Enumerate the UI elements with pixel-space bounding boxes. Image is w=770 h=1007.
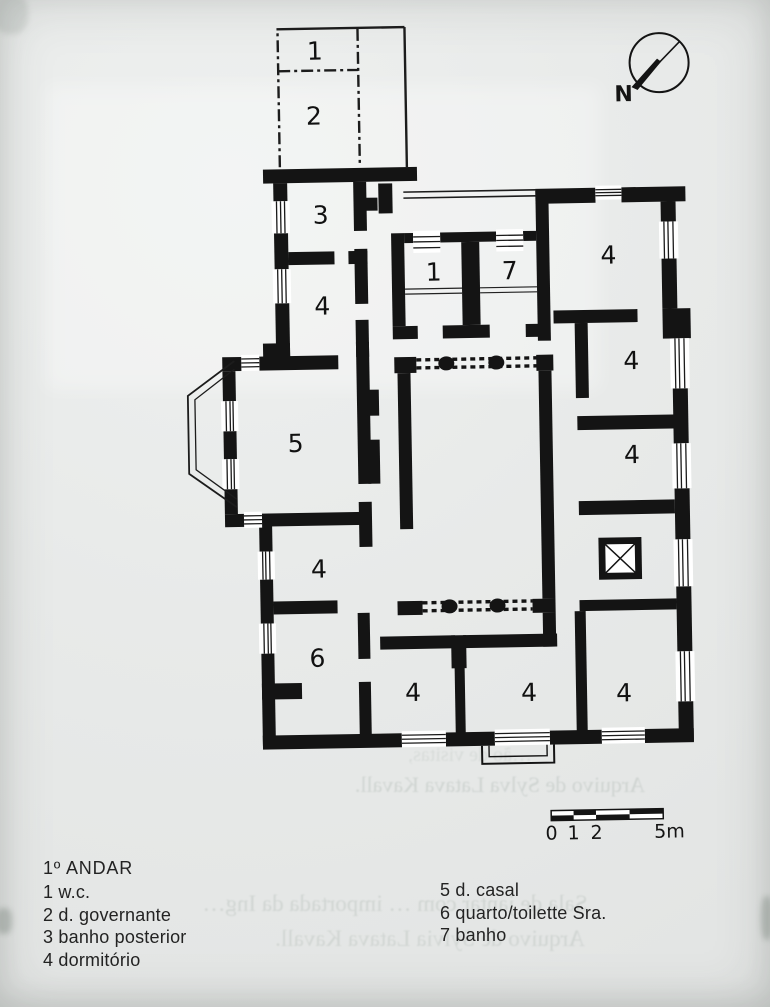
scanned-page: …ão de visitas, Arquivo de Sylva Latava …	[0, 0, 770, 1007]
scale-tick-label: 1	[567, 822, 579, 844]
window-symbol	[413, 230, 440, 252]
legend-item: 4 dormitório	[43, 949, 187, 972]
window-symbol	[659, 221, 679, 258]
window-symbol	[670, 338, 690, 388]
room-label: 1	[426, 257, 442, 286]
north-compass-icon: N	[613, 33, 689, 108]
scale-tick-label: 0	[545, 823, 557, 845]
room-label: 4	[314, 291, 330, 320]
elevator-symbol	[598, 537, 642, 580]
room-label: 4	[616, 678, 632, 707]
scan-artifact	[0, 908, 12, 934]
room-label: 3	[312, 200, 328, 229]
entrance-porch	[482, 745, 554, 764]
legend-item: 1 w.c.	[43, 881, 187, 904]
window-symbol	[241, 355, 259, 371]
north-label: N	[614, 82, 633, 107]
room-label: 5	[287, 429, 303, 458]
window-symbol	[496, 229, 523, 251]
scale-end-label: 5m	[654, 820, 685, 843]
window-symbol	[595, 185, 621, 199]
window-symbol	[244, 512, 262, 528]
scale-tick-label: 2	[590, 822, 602, 844]
colonnade	[416, 355, 542, 614]
legend-left-column: 1 w.c. 2 d. governante 3 banho posterior…	[43, 881, 187, 971]
legend-item: 5 d. casal	[440, 879, 607, 902]
room-label: 6	[309, 644, 325, 673]
window-symbol	[222, 459, 240, 489]
window-symbol	[273, 269, 292, 303]
room-label: 2	[306, 102, 322, 131]
floor-plan-drawing: 1 2 3 4 1 7 4 4 4 5 4 6 4 4 4 N	[0, 0, 770, 1007]
bridge-lines	[403, 190, 536, 198]
legend-item: 3 banho posterior	[43, 926, 187, 949]
window-symbol	[258, 551, 275, 579]
window-symbol	[221, 401, 239, 431]
room-label: 4	[311, 555, 327, 584]
floor-title: 1º ANDAR	[43, 858, 133, 879]
room-label: 4	[405, 678, 421, 707]
window-symbol	[672, 443, 692, 488]
window-symbol	[602, 727, 645, 744]
annex-outline	[276, 27, 406, 169]
scan-artifact	[761, 896, 770, 940]
room-label: 7	[501, 256, 517, 285]
legend-item: 7 banho	[440, 924, 607, 947]
legend-right-column: 5 d. casal 6 quarto/toilette Sra. 7 banh…	[440, 879, 607, 947]
legend-item: 6 quarto/toilette Sra.	[440, 902, 607, 925]
scan-artifact	[0, 0, 28, 34]
scale-bar: 0 1 2 5m	[545, 808, 685, 844]
window-symbol	[675, 651, 695, 701]
room-label: 1	[307, 37, 323, 66]
window-symbol	[402, 730, 446, 747]
legend-item: 2 d. governante	[43, 904, 187, 927]
room-label: 4	[623, 346, 639, 375]
window-symbol	[259, 623, 277, 653]
room-label: 4	[624, 440, 640, 469]
window-symbol	[271, 201, 290, 233]
window-symbol	[495, 729, 550, 746]
room-label: 4	[521, 678, 537, 707]
room-label: 4	[600, 240, 616, 269]
window-symbol	[673, 539, 693, 586]
